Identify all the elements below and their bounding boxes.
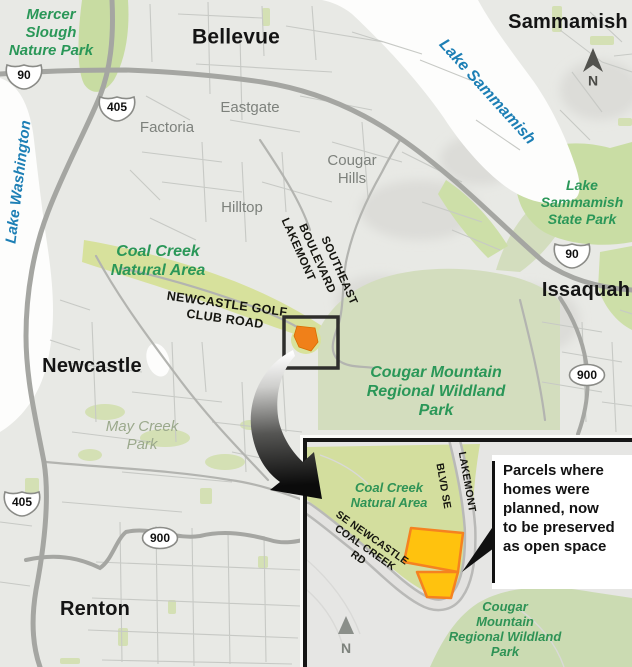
label-cougar-mountain-park: Cougar Mountain Regional Wildland Park <box>367 363 506 421</box>
label-sammamish: Sammamish <box>508 10 628 34</box>
label-issaquah: Issaquah <box>542 278 630 302</box>
label-factoria: Factoria <box>140 119 194 137</box>
label-lakemont-word1: LAKEMONT <box>277 216 317 283</box>
shield-i405-north: 405 <box>107 100 127 114</box>
label-lake-sammamish-state-park: Lake Sammamish State Park <box>541 177 623 227</box>
label-coal-creek-natural-area: Coal Creek Natural Area <box>111 242 206 280</box>
shield-i90-west: 90 <box>17 68 30 82</box>
locator-map: Mercer Slough Nature Park Bellevue Samma… <box>0 0 632 667</box>
label-newcastle-golf-club-road: NEWCASTLE GOLF CLUB ROAD <box>164 289 289 336</box>
label-may-creek-park: May Creek Park <box>106 418 179 454</box>
inset-detail-map: Coal Creek Natural Area LAKEMONT BLVD SE… <box>303 438 632 667</box>
label-lakemont-word2: BOULEVARD <box>295 222 338 296</box>
shield-sr900-south: 900 <box>150 531 170 545</box>
shield-i90-east: 90 <box>565 247 578 261</box>
label-eastgate: Eastgate <box>220 99 279 117</box>
label-lake-washington: Lake Washington <box>3 119 36 244</box>
label-newcastle: Newcastle <box>42 354 142 378</box>
shield-i405-south: 405 <box>12 495 32 509</box>
callout-box: Parcels where homes were planned, now to… <box>492 455 632 589</box>
label-renton: Renton <box>60 597 130 621</box>
label-hilltop: Hilltop <box>221 199 263 217</box>
callout-rule <box>492 461 495 583</box>
label-mercer-slough-nature-park: Mercer Slough Nature Park <box>9 6 93 60</box>
label-lakemont-word3: SOUTHEAST <box>317 235 360 308</box>
label-lake-sammamish: Lake Sammamish <box>435 35 540 148</box>
callout-text: Parcels where homes were planned, now to… <box>503 462 630 556</box>
shield-sr900-east: 900 <box>577 368 597 382</box>
north-arrow-label: N <box>588 73 598 90</box>
label-bellevue: Bellevue <box>192 24 280 49</box>
label-cougar-hills: Cougar Hills <box>327 152 376 188</box>
